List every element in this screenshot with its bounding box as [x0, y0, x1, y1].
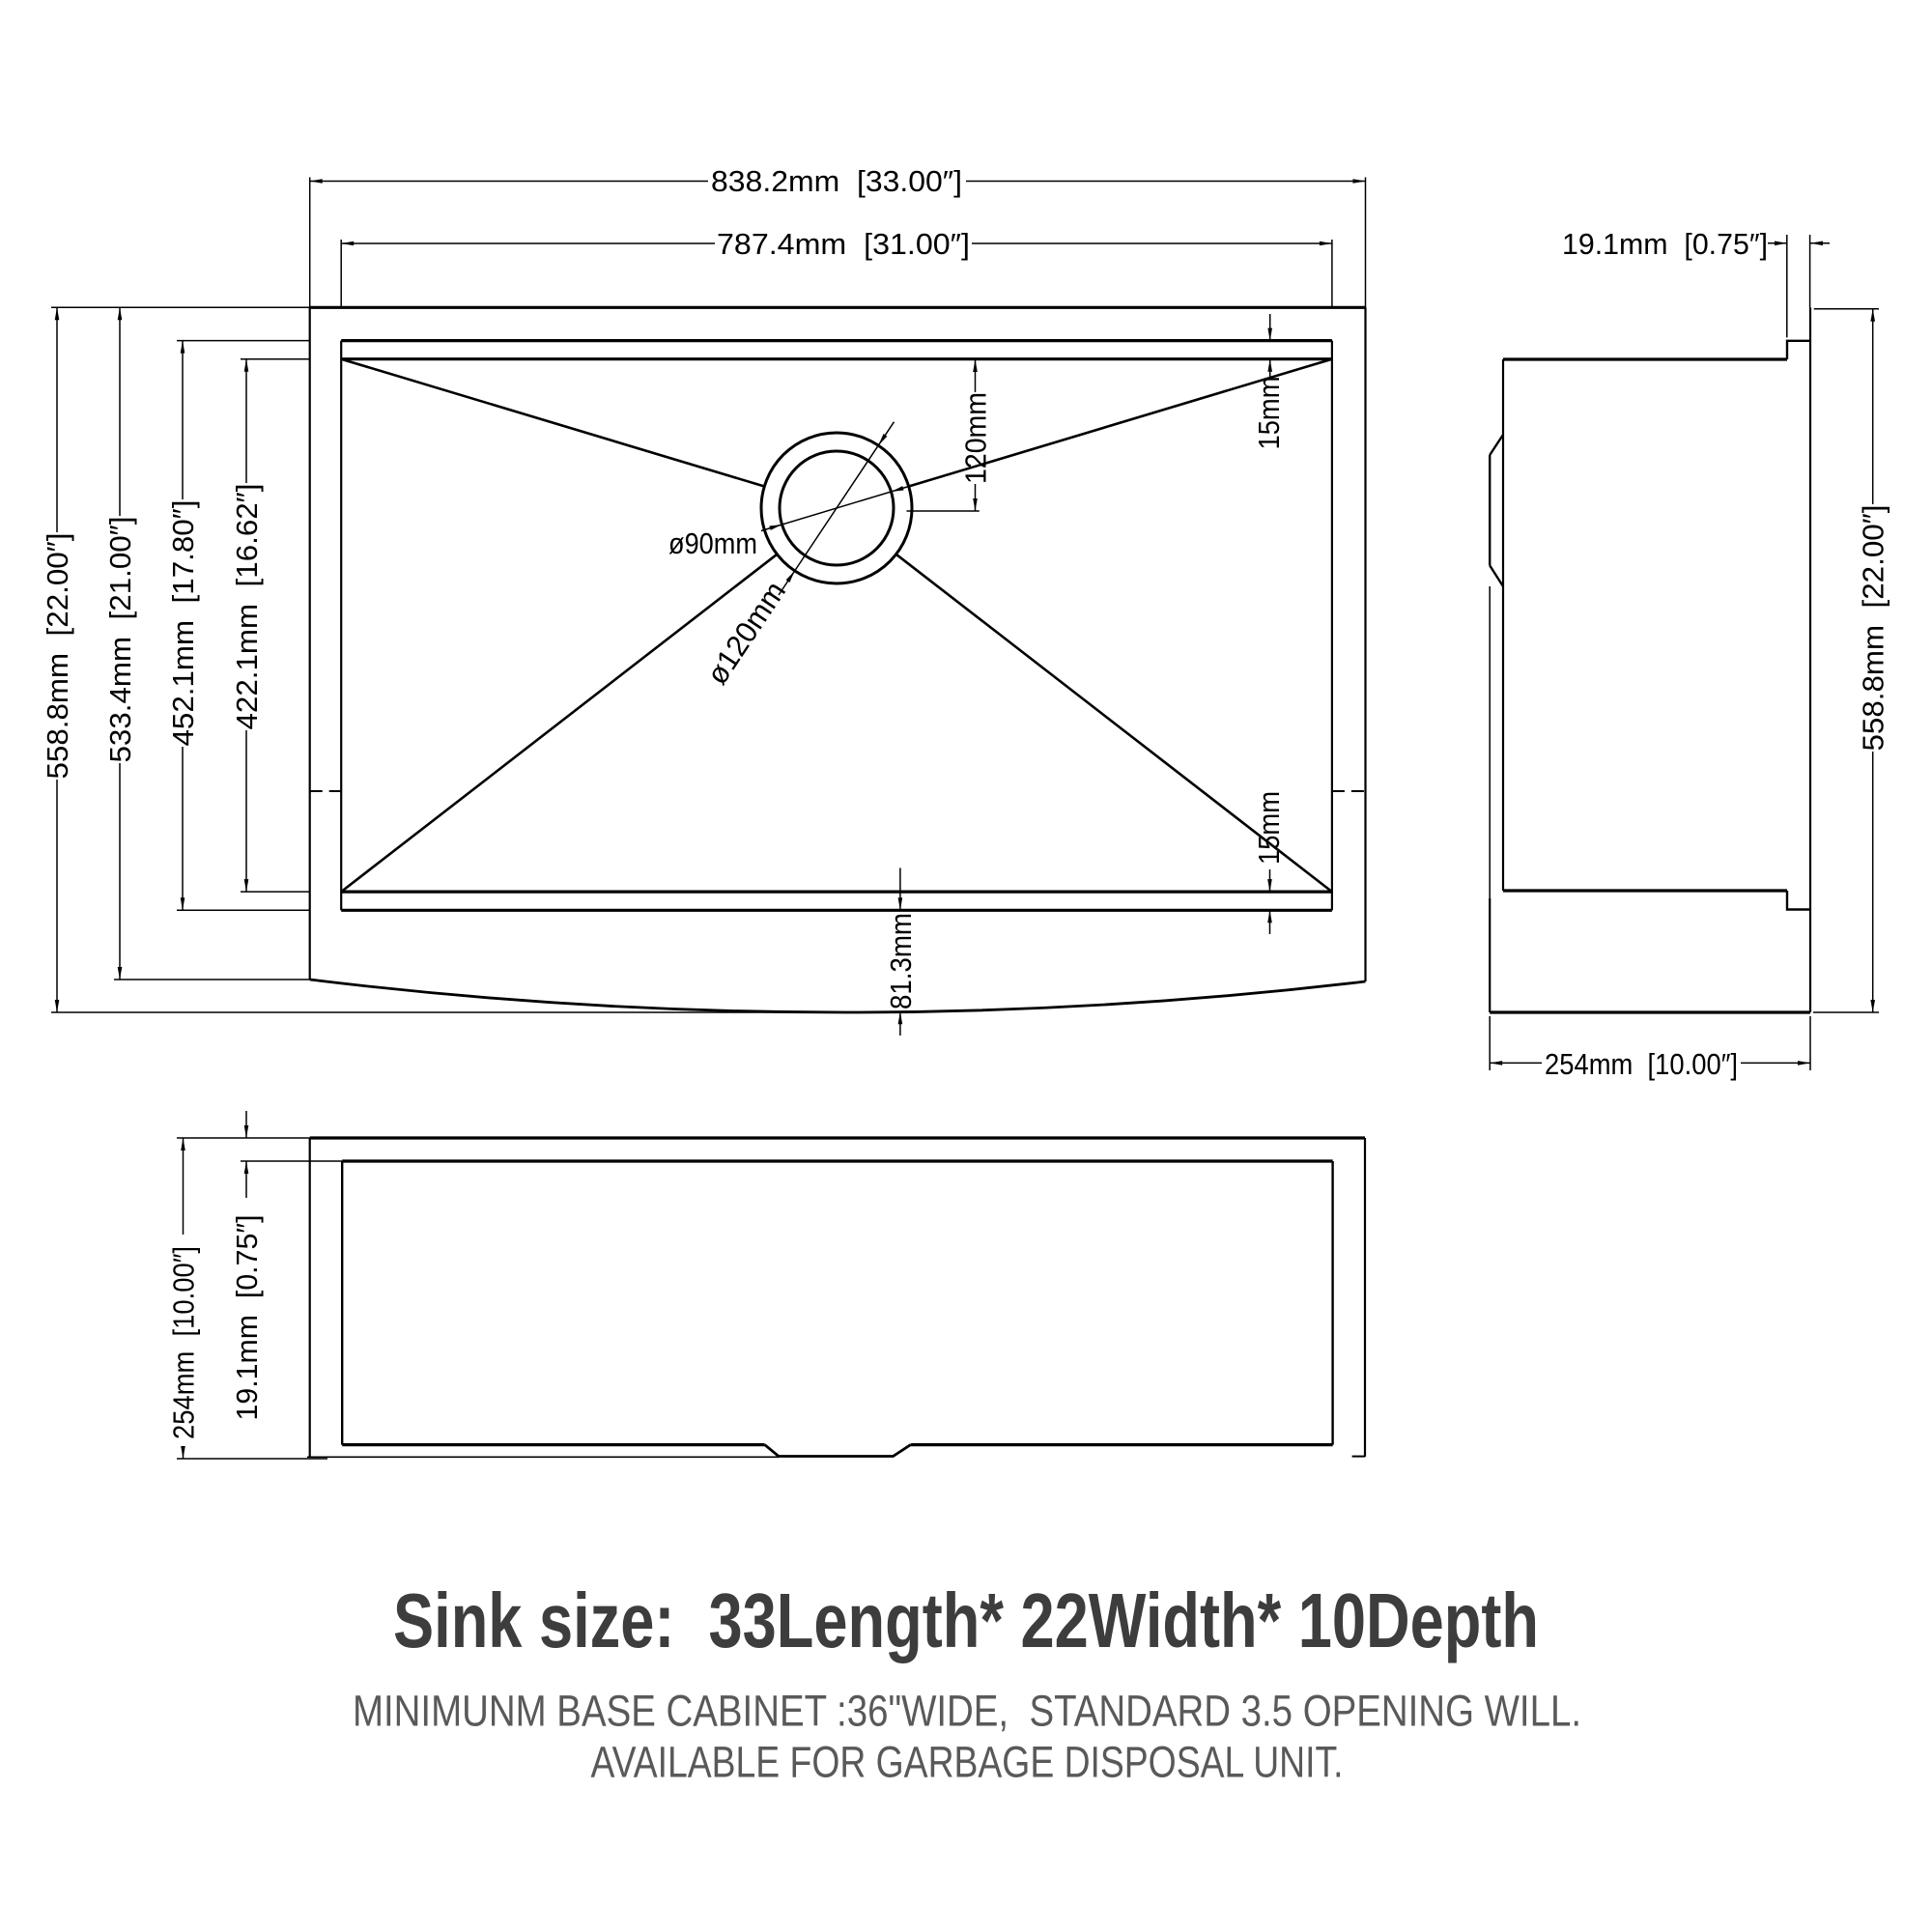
svg-text:558.8mm [22.00″]: 558.8mm [22.00″]	[1857, 505, 1890, 752]
svg-text:81.3mm: 81.3mm	[884, 913, 918, 1009]
svg-text:15mm: 15mm	[1252, 791, 1286, 865]
svg-text:533.4mm [21.00″]: 533.4mm [21.00″]	[103, 517, 137, 763]
svg-text:838.2mm [33.00″]: 838.2mm [33.00″]	[711, 164, 962, 198]
svg-text:AVAILABLE FOR GARBAGE DISPOSAL: AVAILABLE FOR GARBAGE DISPOSAL UNIT.	[591, 1738, 1344, 1787]
svg-text:Sink size: 33Length* 22Width*: Sink size: 33Length* 22Width* 10Depth	[393, 1577, 1539, 1663]
svg-text:ø90mm: ø90mm	[668, 526, 757, 560]
svg-text:558.8mm [22.00″]: 558.8mm [22.00″]	[41, 533, 74, 780]
svg-text:422.1mm [16.62″]: 422.1mm [16.62″]	[230, 484, 264, 730]
svg-text:19.1mm [0.75″]: 19.1mm [0.75″]	[230, 1215, 264, 1421]
svg-text:452.1mm [17.80″]: 452.1mm [17.80″]	[166, 500, 200, 747]
svg-text:120mm: 120mm	[959, 392, 993, 484]
svg-text:19.1mm [0.75″]: 19.1mm [0.75″]	[1562, 227, 1768, 261]
svg-text:254mm [10.00″]: 254mm [10.00″]	[167, 1246, 201, 1439]
svg-text:15mm: 15mm	[1252, 377, 1286, 450]
svg-text:MINIMUNM BASE CABINET :36"WIDE: MINIMUNM BASE CABINET :36"WIDE, STANDARD…	[353, 1687, 1581, 1736]
svg-text:787.4mm [31.00″]: 787.4mm [31.00″]	[717, 227, 970, 261]
svg-text:254mm [10.00″]: 254mm [10.00″]	[1545, 1047, 1738, 1081]
